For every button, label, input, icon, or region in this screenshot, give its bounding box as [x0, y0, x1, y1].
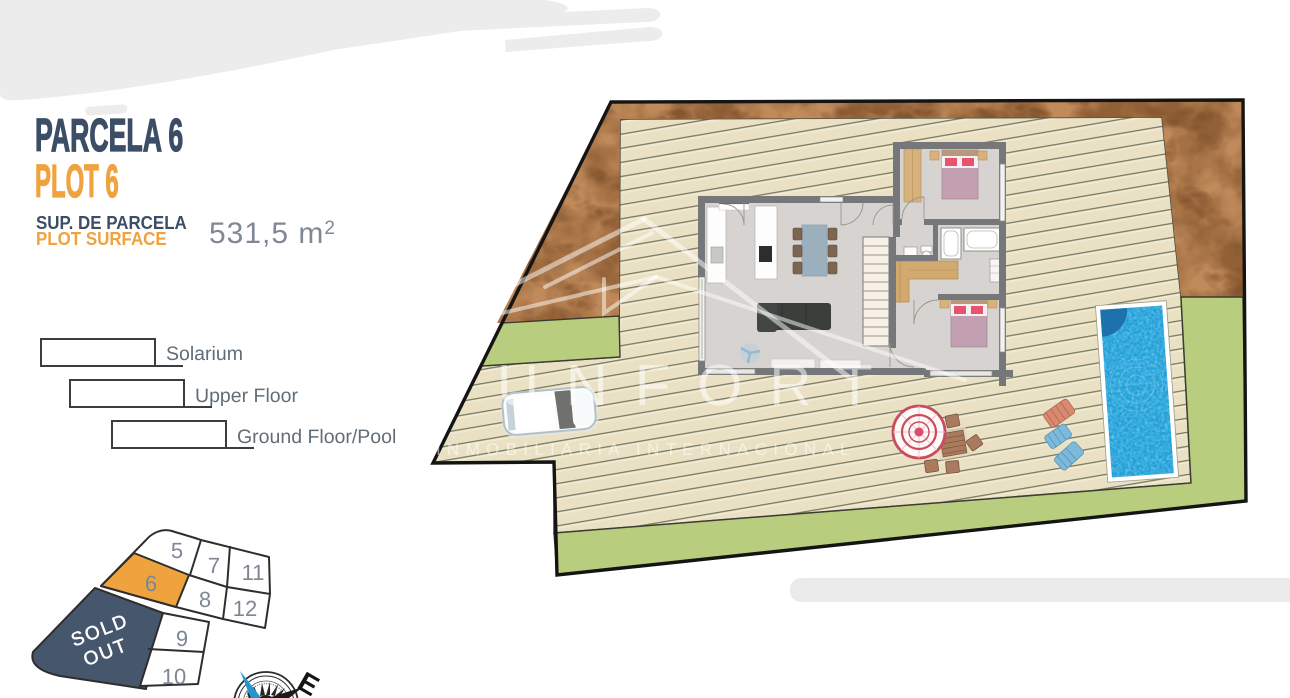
svg-text:6: 6 [145, 571, 157, 596]
svg-text:Solarium: Solarium [166, 343, 243, 365]
svg-text:12: 12 [233, 596, 257, 621]
svg-text:8: 8 [199, 587, 211, 612]
svg-text:UNFORT: UNFORT [497, 353, 900, 418]
svg-text:9: 9 [176, 626, 188, 651]
svg-text:5: 5 [171, 538, 183, 563]
svg-text:10: 10 [162, 664, 186, 689]
svg-text:7: 7 [208, 553, 220, 578]
svg-text:E: E [293, 666, 325, 698]
svg-text:11: 11 [242, 560, 265, 585]
svg-text:Upper Floor: Upper Floor [195, 385, 298, 407]
svg-text:INMOBILIARIA INTERNACIONAL: INMOBILIARIA INTERNACIONAL [436, 440, 856, 459]
svg-text:Ground Floor/Pool: Ground Floor/Pool [237, 426, 396, 448]
